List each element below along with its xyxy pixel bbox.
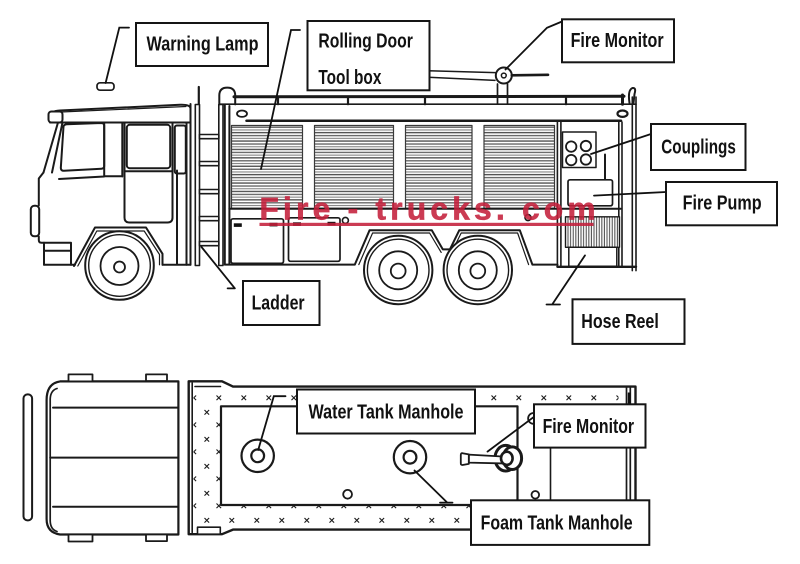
svg-text:Rolling Door: Rolling Door — [318, 30, 413, 52]
svg-text:Fire Monitor: Fire Monitor — [571, 30, 664, 52]
svg-text:Hose Reel: Hose Reel — [581, 311, 659, 333]
svg-text:Water Tank Manhole: Water Tank Manhole — [309, 402, 464, 424]
svg-text:Foam Tank Manhole: Foam Tank Manhole — [481, 513, 633, 535]
svg-text:Warning Lamp: Warning Lamp — [147, 34, 259, 56]
svg-text:Couplings: Couplings — [661, 137, 736, 159]
svg-text:Ladder: Ladder — [252, 293, 305, 315]
svg-text:Tool box: Tool box — [318, 67, 381, 89]
svg-text:Fire Pump: Fire Pump — [683, 193, 762, 215]
svg-text:Fire Monitor: Fire Monitor — [543, 416, 635, 438]
